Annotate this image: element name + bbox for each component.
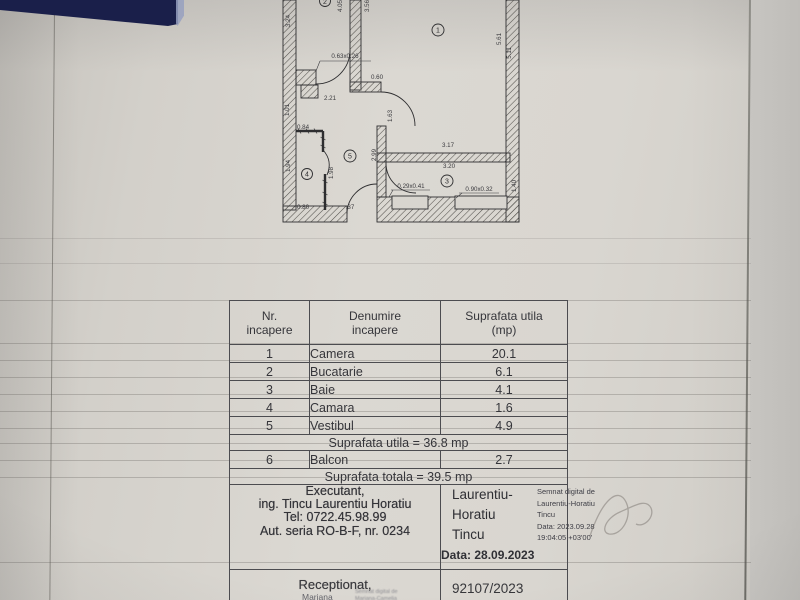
room-number: 4 — [230, 399, 310, 417]
room-number-label: 5 — [348, 154, 352, 161]
dim-label: 0.84 — [297, 124, 310, 131]
dim-label: 1.63 — [387, 109, 394, 122]
dim-label: 1.40 — [511, 179, 518, 192]
table-row: 3 Baie 4.1 — [230, 381, 568, 399]
useful-area-row: Suprafata utila = 36.8 mp — [230, 435, 568, 451]
scan-line — [0, 263, 751, 264]
reception-row: Receptionat, Mariana Camelia Semnat digi… — [230, 570, 568, 600]
dim-label: 3.17 — [442, 142, 455, 149]
plan-partitions — [296, 131, 325, 210]
executant-phone: Tel: 0722.45.98.99 — [230, 511, 440, 524]
signature-date: Data: 28.09.2023 — [441, 548, 567, 562]
dim-label: 5.61 — [496, 32, 503, 45]
room-number-label: 3 — [445, 179, 449, 186]
room-name: Balcon — [310, 451, 441, 469]
room-area: 4.9 — [441, 417, 568, 435]
dim-label: 0.80 — [297, 204, 310, 211]
room-number-label: 4 — [305, 172, 309, 179]
photographed-document: 1 2 3 4 5 0.63x0.26 0.60 2.21 3.17 3.20 … — [0, 0, 800, 600]
header-suprafata-utila: Suprafata utila (mp) — [441, 301, 568, 345]
dim-label: 3.24 — [285, 14, 292, 27]
room-area-table: Nr. incapere Denumire incapere Suprafata… — [229, 300, 568, 600]
header-nr-incapere: Nr. incapere — [230, 301, 310, 345]
executant-cell: Executant, ing. Tincu Laurentiu Horatiu … — [230, 485, 441, 570]
room-number: 2 — [230, 363, 310, 381]
room-name: Camara — [310, 399, 441, 417]
dim-label: 0.63x0.26 — [331, 53, 359, 60]
total-area: Suprafata totala = 39.5 mp — [230, 469, 568, 485]
reception-signatory-name: Mariana Camelia — [302, 592, 333, 600]
plan-dimension-lines — [316, 61, 499, 198]
document-content: 1 2 3 4 5 0.63x0.26 0.60 2.21 3.17 3.20 … — [0, 0, 800, 600]
reception-cell: Receptionat, Mariana Camelia Semnat digi… — [230, 570, 441, 600]
dim-label: 1.94 — [285, 159, 292, 172]
room-name: Camera — [310, 345, 441, 363]
table-row: 4 Camara 1.6 — [230, 399, 568, 417]
floor-plan: 1 2 3 4 5 0.63x0.26 0.60 2.21 3.17 3.20 … — [278, 0, 525, 233]
room-number: 1 — [230, 345, 310, 363]
table-row-balcony: 6 Balcon 2.7 — [230, 451, 568, 469]
registration-number: 92107/2023 — [441, 570, 567, 596]
executant-row: Executant, ing. Tincu Laurentiu Horatiu … — [230, 485, 568, 570]
header-denumire-incapere: Denumire incapere — [310, 301, 441, 345]
registration-number-cell: 92107/2023 — [441, 570, 568, 600]
table-header-row: Nr. incapere Denumire incapere Suprafata… — [230, 301, 568, 345]
scan-line — [0, 238, 751, 239]
dim-label: 1.98 — [328, 166, 335, 179]
room-area: 4.1 — [441, 381, 568, 399]
room-area: 6.1 — [441, 363, 568, 381]
room-number: 5 — [230, 417, 310, 435]
dim-label: 3.20 — [443, 163, 456, 170]
total-area-row: Suprafata totala = 39.5 mp — [230, 469, 568, 485]
dim-label: 0.60 — [371, 74, 384, 81]
room-number: 3 — [230, 381, 310, 399]
room-name: Baie — [310, 381, 441, 399]
table-row: 5 Vestibul 4.9 — [230, 417, 568, 435]
dim-label: 2.99 — [371, 148, 378, 161]
table-row: 1 Camera 20.1 — [230, 345, 568, 363]
dim-label: 1.01 — [284, 103, 291, 116]
dim-label: 4.05 — [337, 0, 344, 12]
dim-label: 2.21 — [324, 95, 337, 102]
room-name: Vestibul — [310, 417, 441, 435]
dim-label: 3.56 — [364, 0, 371, 12]
room-area: 2.7 — [441, 451, 568, 469]
room-area: 1.6 — [441, 399, 568, 417]
useful-area-total: Suprafata utila = 36.8 mp — [230, 435, 568, 451]
dim-label: 5.11 — [506, 47, 513, 59]
room-name: Bucatarie — [310, 363, 441, 381]
room-area: 20.1 — [441, 345, 568, 363]
room-number-label: 2 — [323, 0, 327, 6]
reception-digital-stamp: Semnat digital de Mariana-Camelia — [355, 589, 415, 600]
room-number: 6 — [230, 451, 310, 469]
executant-authorization: Aut. seria RO-B-F, nr. 0234 — [230, 525, 440, 538]
dim-label: 0.90x0.32 — [465, 186, 493, 193]
table-row: 2 Bucatarie 6.1 — [230, 363, 568, 381]
handwritten-signature — [578, 478, 668, 553]
plan-dimension-labels: 0.63x0.26 0.60 2.21 3.17 3.20 0.84 0.80 … — [284, 0, 518, 211]
dim-label: .37 — [346, 204, 355, 211]
room-number-label: 1 — [436, 28, 440, 35]
dim-label: 0.29x0.41 — [397, 183, 425, 190]
